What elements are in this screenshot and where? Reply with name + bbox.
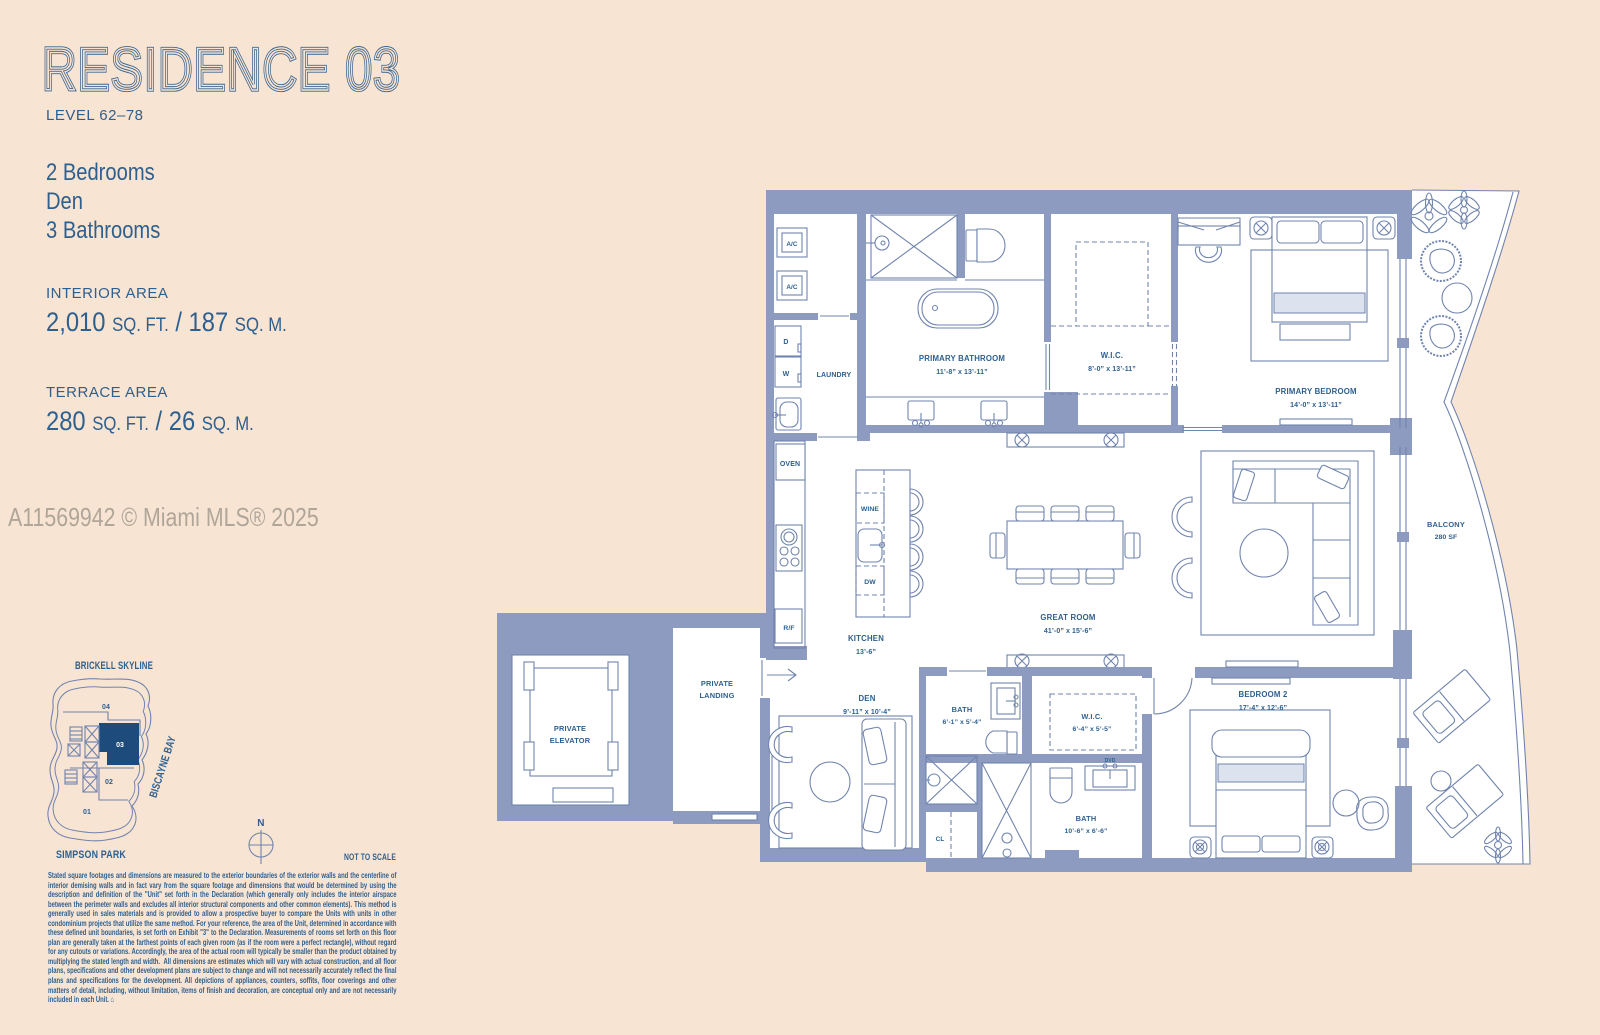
svg-text:WINE: WINE: [861, 506, 880, 513]
svg-text:BATH: BATH: [1076, 814, 1097, 823]
svg-text:PRIMARY BATHROOM: PRIMARY BATHROOM: [919, 354, 1005, 363]
svg-text:14’-0” x 13’-11”: 14’-0” x 13’-11”: [1290, 402, 1342, 409]
svg-text:BATH: BATH: [952, 705, 973, 714]
svg-text:6’-4” x 5’-5”: 6’-4” x 5’-5”: [1072, 726, 1111, 733]
svg-text:01: 01: [83, 809, 91, 816]
svg-text:NOT TO SCALE: NOT TO SCALE: [344, 852, 396, 863]
svg-text:PRIMARY BEDROOM: PRIMARY BEDROOM: [1275, 387, 1356, 396]
svg-text:A/C: A/C: [786, 284, 798, 291]
svg-text:02: 02: [105, 779, 113, 786]
svg-text:A/C: A/C: [786, 241, 798, 248]
svg-text:N: N: [257, 818, 264, 829]
svg-text:PRIVATE: PRIVATE: [554, 724, 586, 733]
svg-text:BEDROOM 2: BEDROOM 2: [1238, 690, 1287, 699]
svg-text:W.I.C.: W.I.C.: [1081, 712, 1102, 721]
svg-text:LANDING: LANDING: [699, 691, 734, 700]
svg-text:6’-1” x 5’-4”: 6’-1” x 5’-4”: [942, 719, 981, 726]
svg-text:DW: DW: [864, 579, 876, 586]
svg-text:W.I.C.: W.I.C.: [1101, 351, 1123, 360]
svg-text:DVD: DVD: [1105, 758, 1116, 764]
svg-text:BALCONY: BALCONY: [1427, 520, 1465, 529]
svg-text:11’-8” x 13’-11”: 11’-8” x 13’-11”: [936, 369, 987, 376]
svg-text:BISCAYNE BAY: BISCAYNE BAY: [148, 734, 179, 799]
svg-text:04: 04: [102, 704, 110, 711]
svg-text:8’-0” x 13’-11”: 8’-0” x 13’-11”: [1088, 366, 1136, 373]
svg-text:W: W: [783, 371, 790, 378]
svg-text:03: 03: [116, 742, 124, 749]
svg-text:10’-6” x 6’-6”: 10’-6” x 6’-6”: [1065, 828, 1108, 835]
svg-text:BRICKELL SKYLINE: BRICKELL SKYLINE: [75, 660, 153, 672]
svg-text:ELEVATOR: ELEVATOR: [550, 736, 591, 745]
svg-text:SIMPSON PARK: SIMPSON PARK: [56, 849, 126, 861]
svg-text:LAUNDRY: LAUNDRY: [817, 372, 852, 379]
svg-text:CL: CL: [936, 836, 945, 843]
svg-text:D: D: [783, 339, 788, 346]
svg-text:GREAT ROOM: GREAT ROOM: [1040, 613, 1095, 622]
svg-text:17’-4” x 12’-6”: 17’-4” x 12’-6”: [1239, 705, 1287, 712]
svg-text:OVEN: OVEN: [780, 461, 800, 468]
svg-text:41’-0” x 15’-6”: 41’-0” x 15’-6”: [1044, 628, 1092, 635]
svg-text:9’-11” x 10’-4”: 9’-11” x 10’-4”: [843, 709, 891, 716]
svg-text:R/F: R/F: [783, 625, 794, 632]
svg-text:PRIVATE: PRIVATE: [701, 679, 733, 688]
svg-text:13’-6”: 13’-6”: [856, 649, 876, 656]
svg-text:DEN: DEN: [858, 694, 875, 703]
svg-text:KITCHEN: KITCHEN: [848, 634, 884, 643]
svg-text:280 SF: 280 SF: [1435, 534, 1458, 541]
